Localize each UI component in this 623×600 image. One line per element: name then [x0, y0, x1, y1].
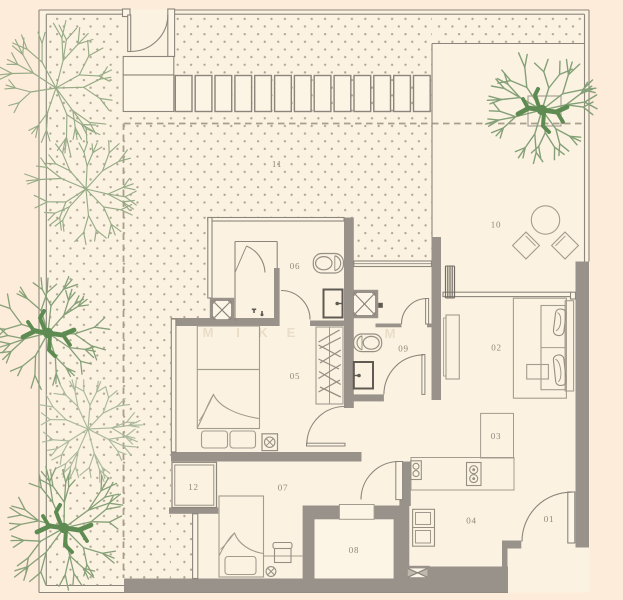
svg-text:03: 03: [491, 431, 502, 441]
svg-text:E: E: [287, 325, 296, 340]
svg-text:02: 02: [491, 343, 502, 353]
svg-text:08: 08: [349, 545, 360, 555]
svg-text:06: 06: [290, 261, 301, 271]
svg-text:10: 10: [491, 220, 502, 230]
svg-text:01: 01: [544, 514, 555, 524]
svg-text:09: 09: [398, 344, 409, 354]
svg-text:K: K: [258, 325, 268, 340]
svg-text:I: I: [236, 325, 240, 340]
svg-text:05: 05: [290, 371, 301, 381]
svg-text:M: M: [203, 325, 214, 340]
svg-text:04: 04: [466, 516, 477, 526]
svg-text:M: M: [385, 326, 396, 341]
svg-text:07: 07: [278, 483, 289, 493]
svg-text:11: 11: [272, 159, 282, 169]
svg-text:12: 12: [188, 482, 199, 492]
